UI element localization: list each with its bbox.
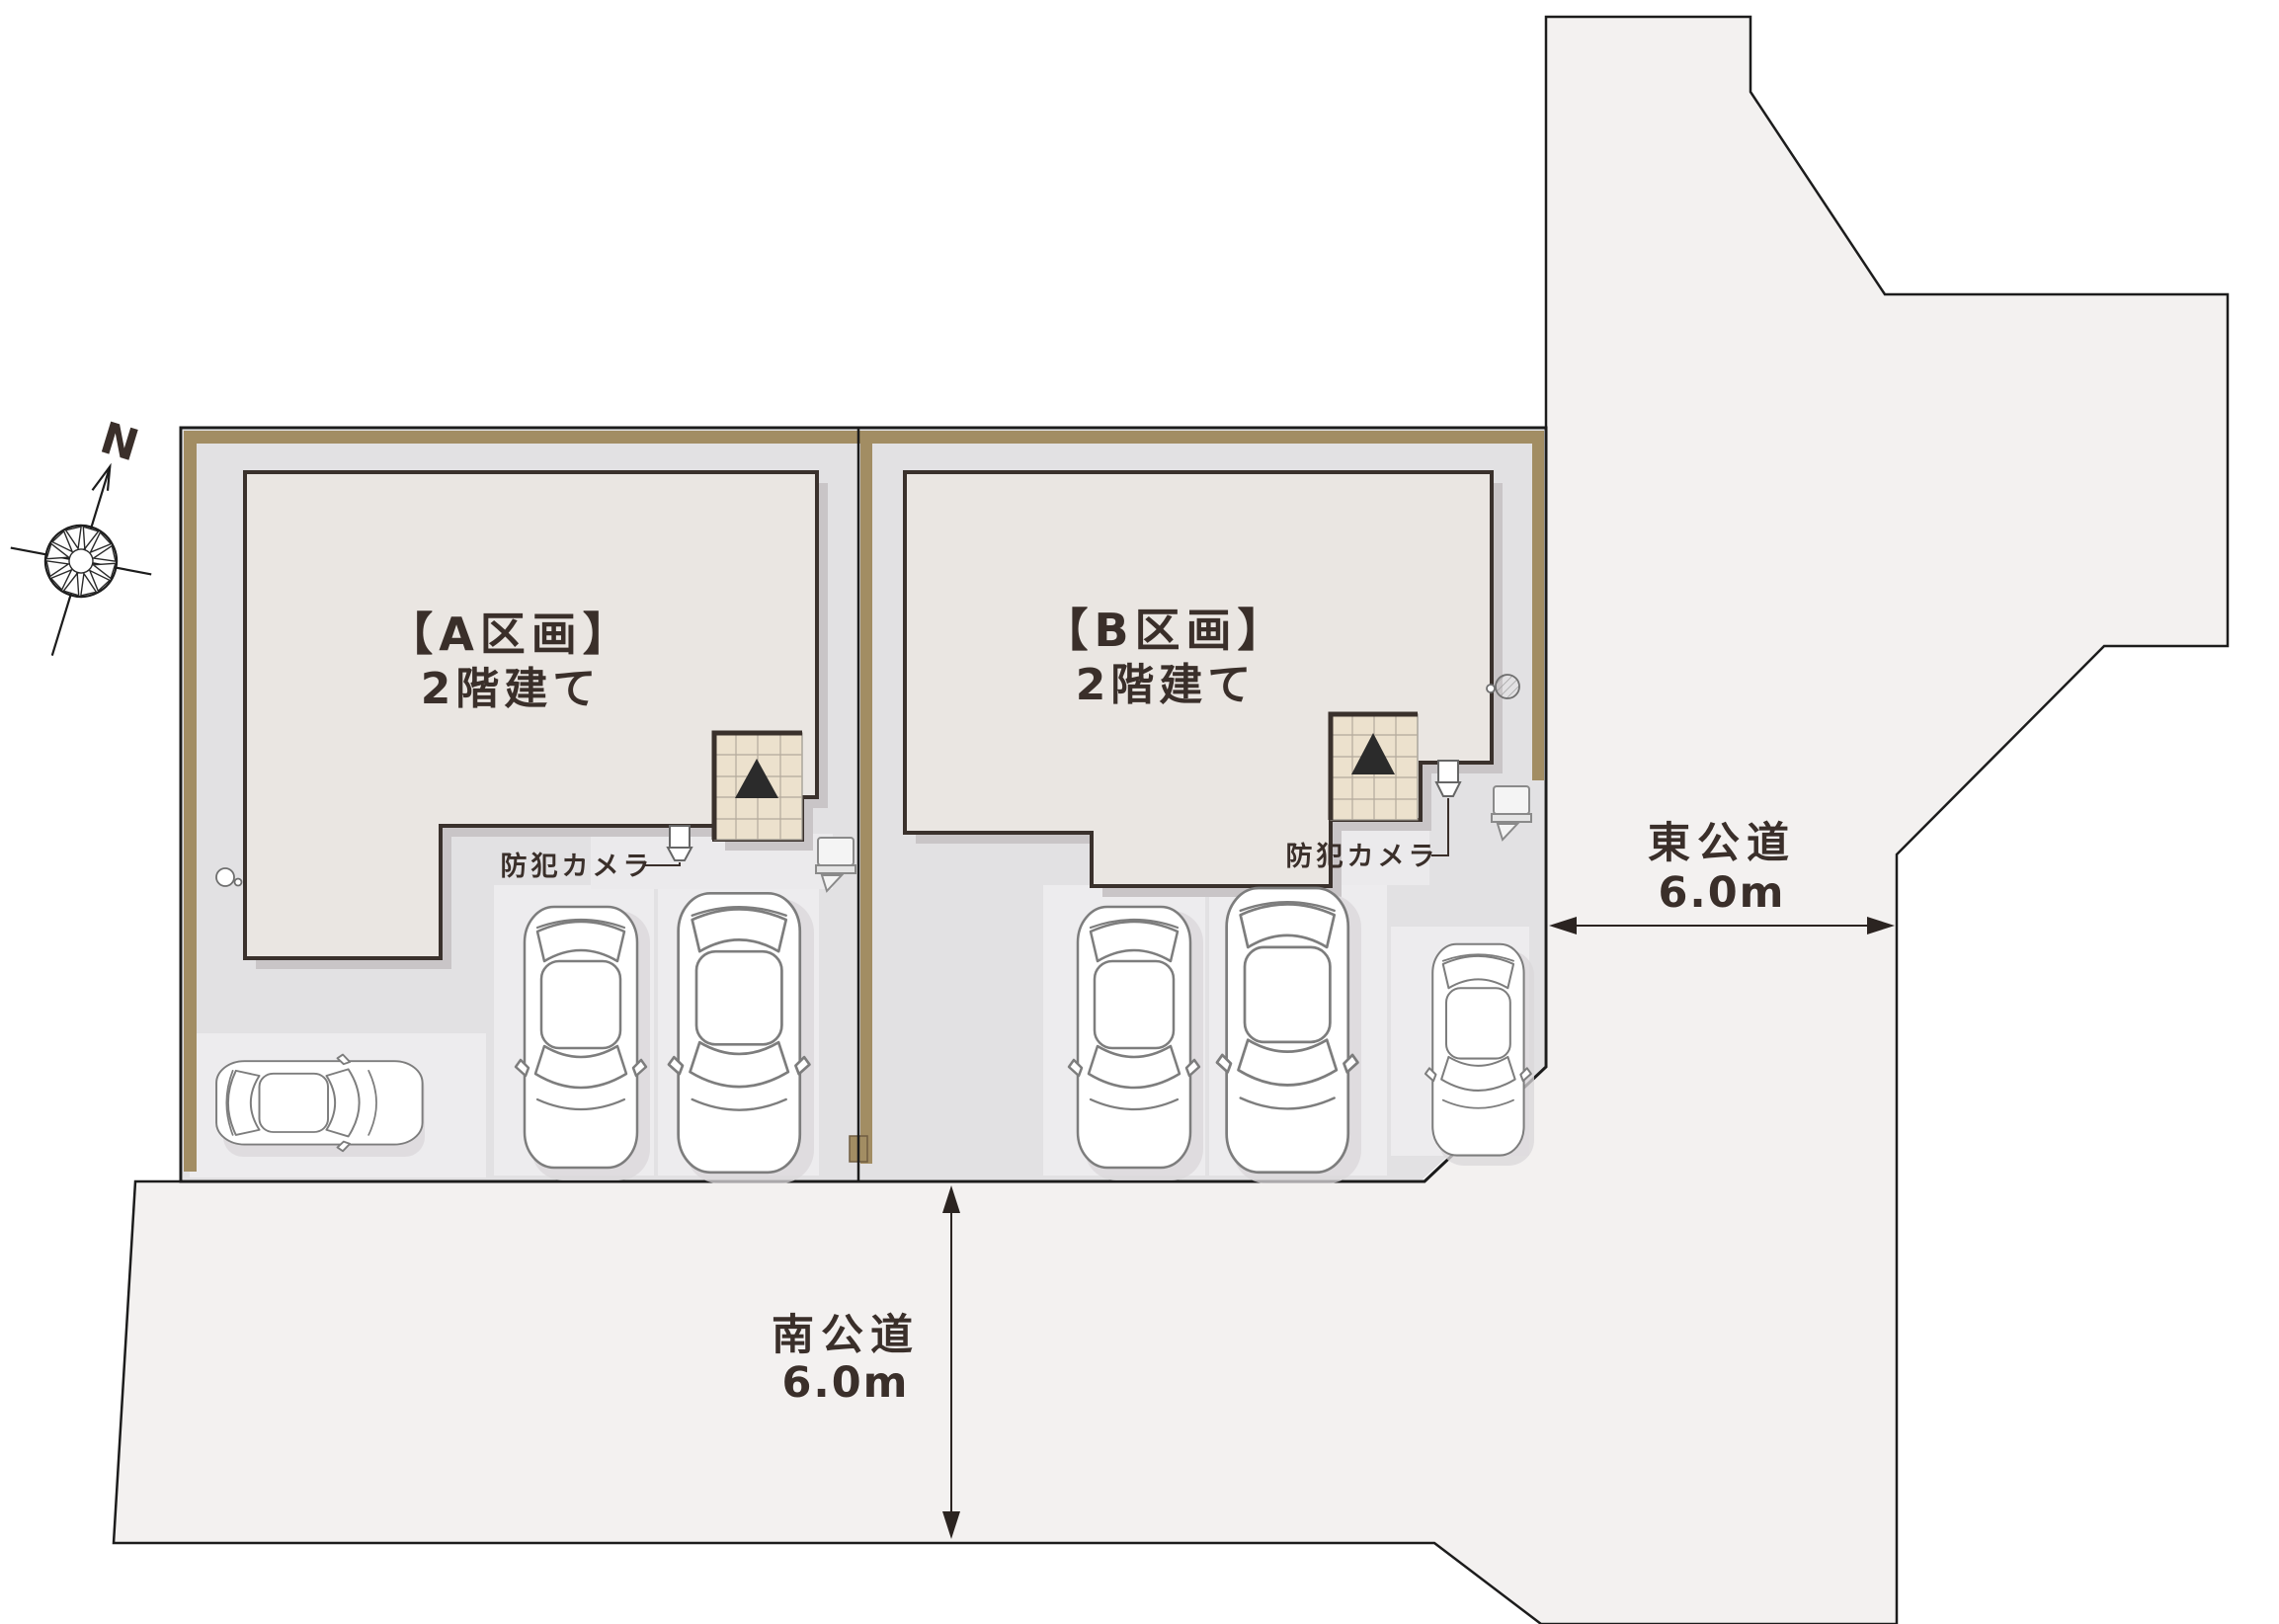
car-plot-b-1 — [1069, 907, 1199, 1168]
car-plot-a-1 — [516, 907, 646, 1168]
south-road-width: 6.0m — [782, 1358, 910, 1408]
car-plot-b-compact — [1425, 944, 1531, 1156]
east-road-name: 東公道 — [1648, 819, 1796, 868]
camera-label-b: 防犯カメラ — [1286, 842, 1439, 872]
car-plot-a-2 — [669, 893, 810, 1172]
fence-divider — [860, 431, 872, 1164]
south-road-name: 南公道 — [772, 1311, 920, 1360]
site-plan-canvas: 【A区画】 2階建て 【B区画】 2階建て 防犯カメラ 防犯カメラ 東公道 6.… — [0, 0, 2279, 1624]
plot-a-floors-label: 2階建て — [421, 664, 602, 714]
fence-left — [184, 431, 197, 1172]
compass-rose-spokes — [40, 520, 123, 604]
plot-b-floors-label: 2階建て — [1076, 660, 1257, 710]
east-road-width: 6.0m — [1659, 868, 1786, 918]
entrance-porch-b — [1331, 714, 1418, 820]
camera-icon — [670, 826, 690, 848]
fence-right — [1532, 431, 1544, 780]
north-label: N — [95, 413, 144, 472]
plot-b-name-label: 【B区画】 — [1042, 604, 1288, 657]
site-plan-drawing: 【A区画】 2階建て 【B区画】 2階建て 防犯カメラ 防犯カメラ 東公道 6.… — [0, 0, 2279, 1624]
camera-label-a: 防犯カメラ — [501, 852, 654, 882]
car-wagon-plot-a — [216, 1055, 423, 1152]
camera-icon — [1438, 761, 1458, 782]
entrance-porch-a — [714, 733, 802, 840]
car-plot-b-2 — [1217, 888, 1358, 1173]
plot-a-name-label: 【A区画】 — [387, 608, 634, 661]
compass: N — [0, 397, 193, 677]
